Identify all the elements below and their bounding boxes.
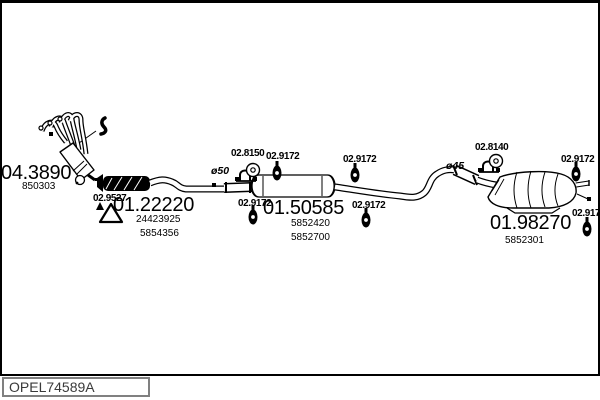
pipe-diameter-rear: ø45 <box>446 161 464 172</box>
oem-ref-rear-silencer: 5852301 <box>505 236 544 246</box>
part-number-centre-silencer[interactable]: 01.50585 <box>263 198 344 218</box>
oem-ref-front-pipe-2: 5854356 <box>140 229 179 239</box>
part-number-hanger[interactable]: 02.9172 <box>561 155 594 165</box>
part-number-rear-silencer[interactable]: 01.98270 <box>490 213 571 233</box>
rubber-hanger-icon <box>351 163 360 183</box>
clamp-rear-icon <box>478 155 503 173</box>
part-number-hanger[interactable]: 02.9172 <box>266 152 299 162</box>
oem-ref-manifold: 850303 <box>22 182 55 192</box>
clamp-front-icon <box>235 164 260 182</box>
connecting-pipe-drawing <box>335 165 496 197</box>
part-number-front-pipe[interactable]: 01.22220 <box>113 195 194 215</box>
part-number-hanger[interactable]: 02.9172 <box>343 155 376 165</box>
diagram-code-box: OPEL74589A <box>2 377 150 397</box>
oem-ref-front-pipe-1: 24423925 <box>136 215 181 225</box>
pipe-diameter-front: ø50 <box>211 166 229 177</box>
rubber-hanger-icon <box>273 161 282 181</box>
part-number-manifold[interactable]: 04.3890 <box>1 163 71 183</box>
rubber-hanger-icon <box>583 217 592 237</box>
part-number-hanger[interactable]: 02.9172 <box>572 209 600 219</box>
part-number-hanger[interactable]: 02.9172 <box>352 201 385 211</box>
flex-pipe-drawing <box>97 174 150 192</box>
part-number-clamp-front[interactable]: 02.8150 <box>231 149 264 159</box>
exhaust-diagram-page: 04.3890 850303 02.9527 01.22220 24423925… <box>0 0 600 400</box>
diagram-code-label: OPEL74589A <box>9 379 95 395</box>
oem-ref-centre-silencer-1: 5852420 <box>291 219 330 229</box>
centre-silencer-drawing <box>251 175 335 197</box>
oem-ref-centre-silencer-2: 5852700 <box>291 233 330 243</box>
part-number-clamp-rear[interactable]: 02.8140 <box>475 143 508 153</box>
